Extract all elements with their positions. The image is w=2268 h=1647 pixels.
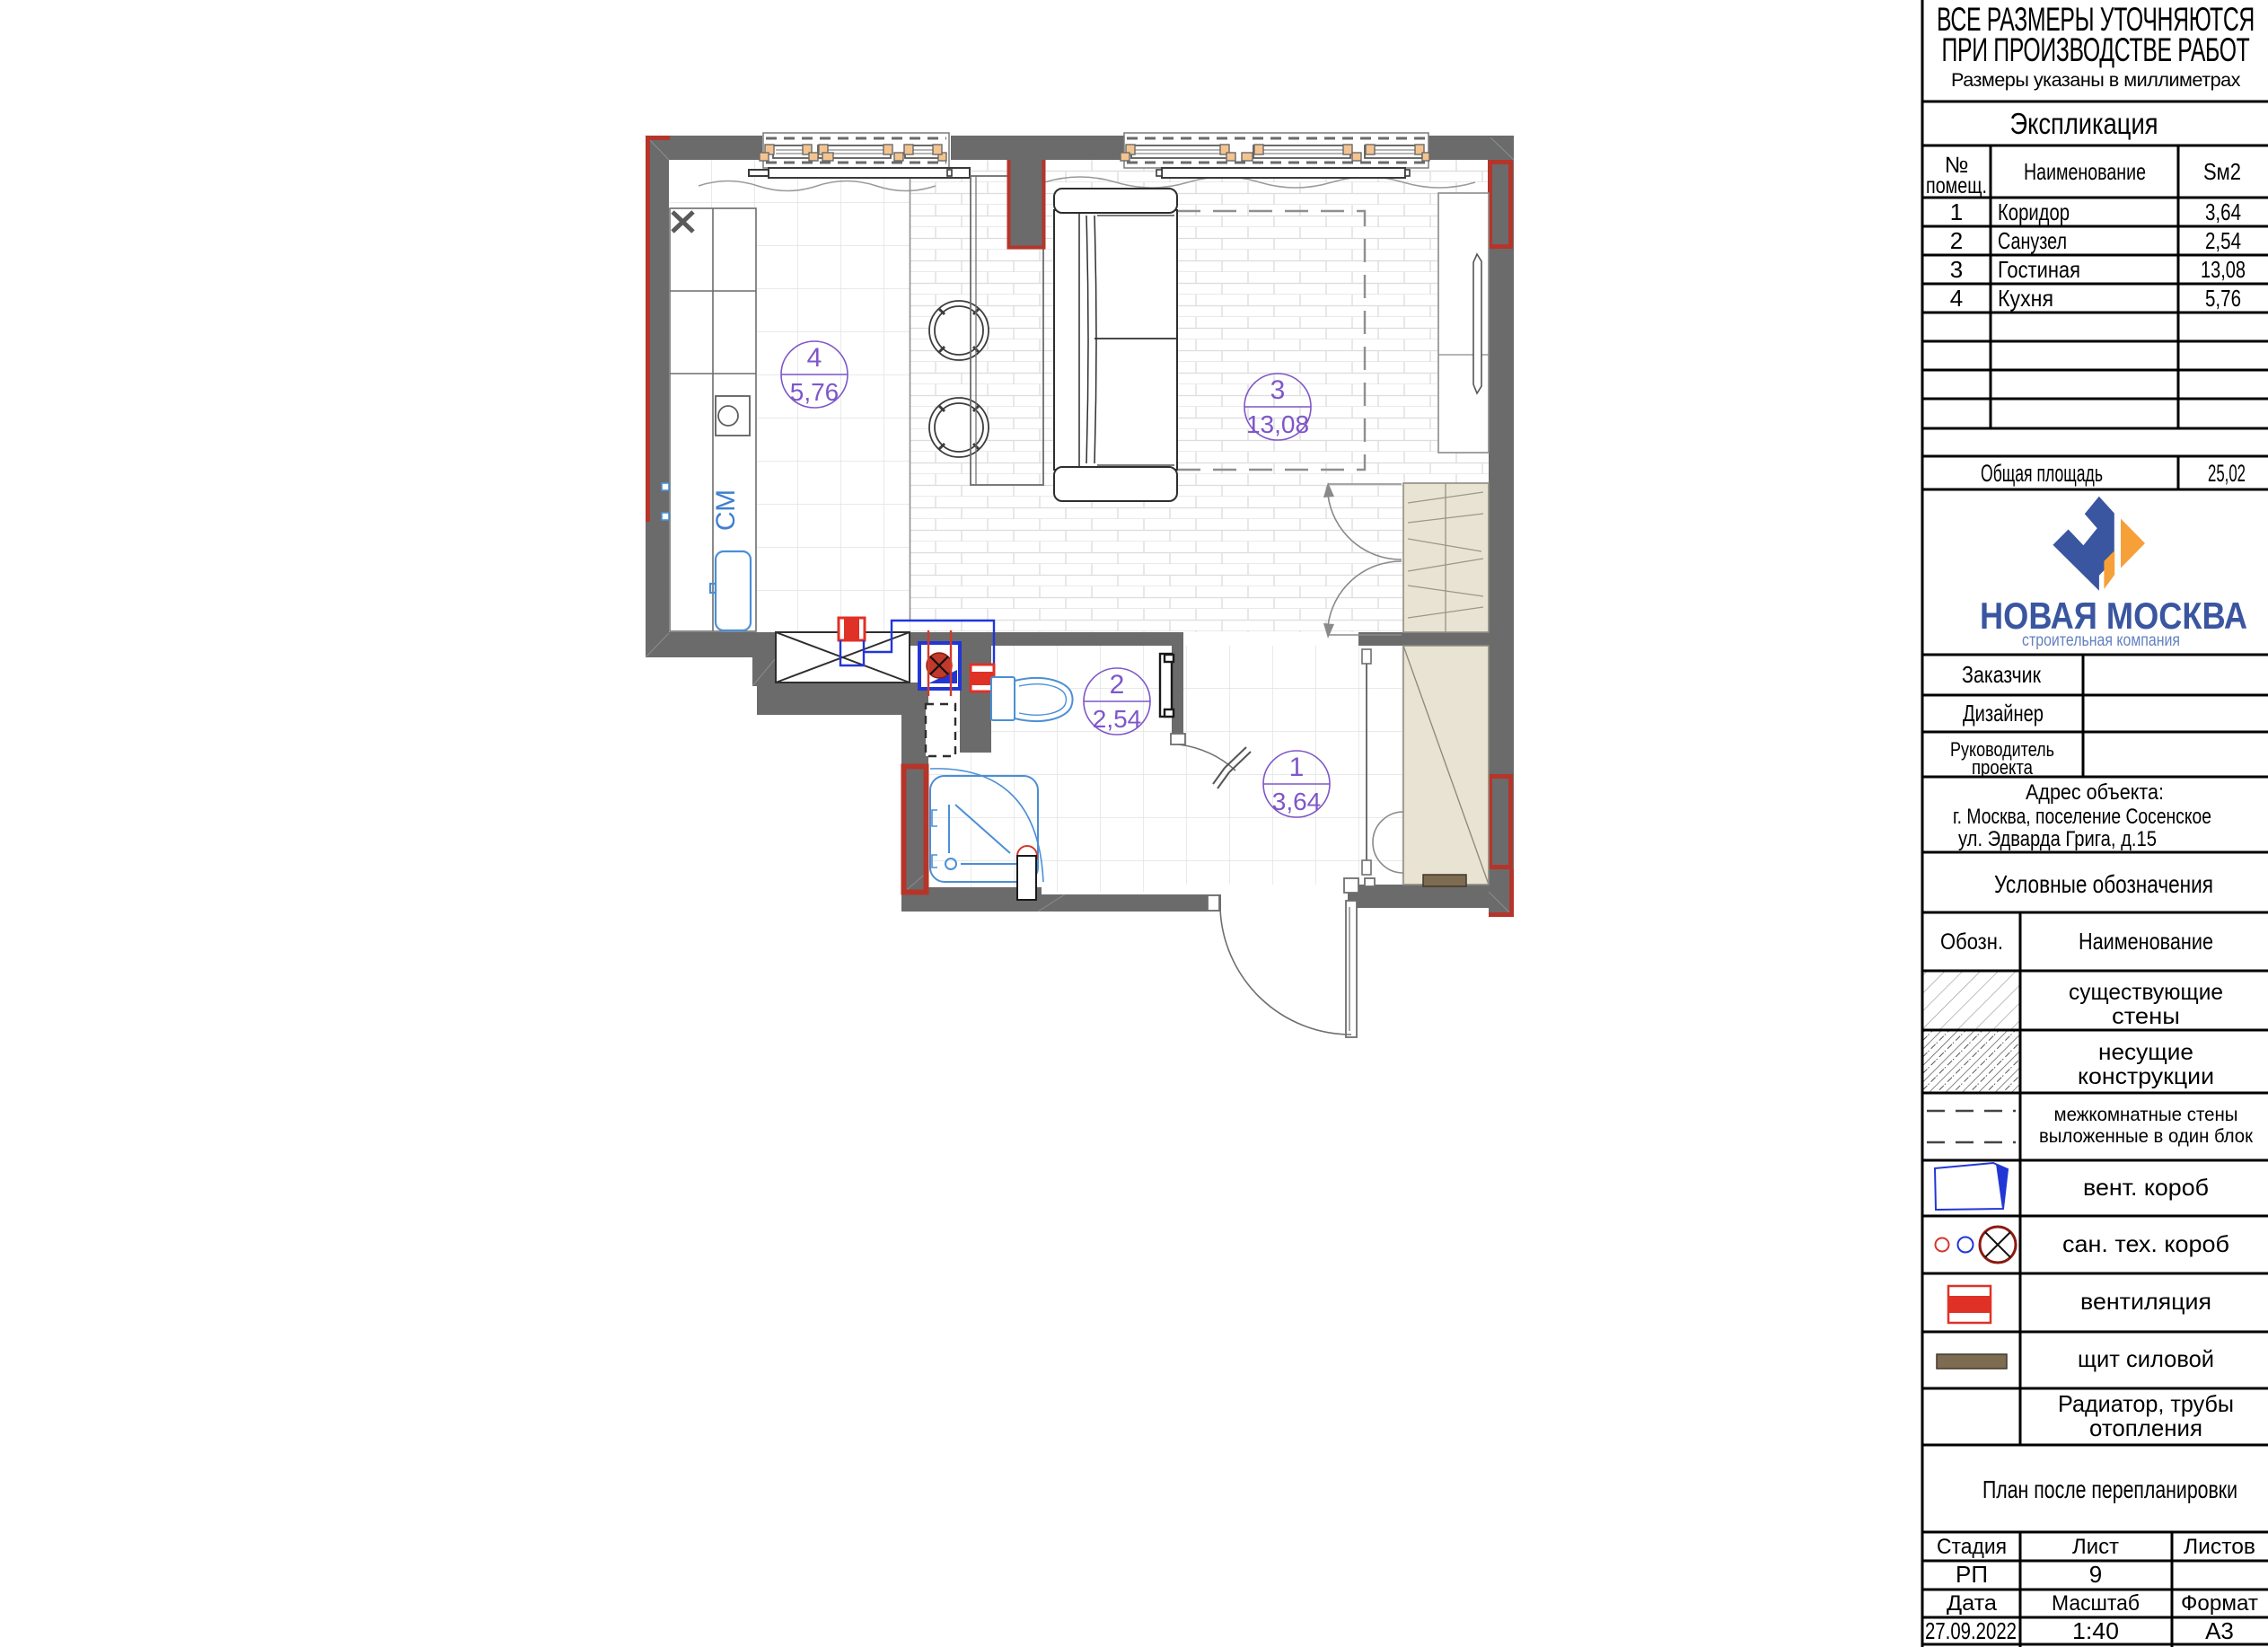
svg-text:межкомнатные стены: межкомнатные стены	[2054, 1105, 2238, 1125]
svg-text:проекта: проекта	[1972, 756, 2034, 779]
svg-text:ПРИ ПРОИЗВОДСТВЕ РАБОТ: ПРИ ПРОИЗВОДСТВЕ РАБОТ	[1942, 31, 2250, 68]
svg-text:4: 4	[1950, 285, 1963, 312]
svg-text:13,08: 13,08	[2201, 256, 2246, 283]
svg-text:План после перепланировки: План после перепланировки	[1982, 1475, 2237, 1503]
svg-text:выложенные в один блок: выложенные в один блок	[2039, 1126, 2254, 1147]
svg-text:Дизайнер: Дизайнер	[1963, 700, 2044, 727]
svg-text:строительная компания: строительная компания	[2022, 631, 2180, 650]
svg-text:Листов: Листов	[2184, 1535, 2255, 1559]
svg-text:Заказчик: Заказчик	[1962, 661, 2042, 688]
svg-text:Радиатор, трубы: Радиатор, трубы	[2058, 1390, 2234, 1417]
svg-text:А3: А3	[2205, 1617, 2234, 1644]
svg-text:РП: РП	[1956, 1561, 1988, 1588]
svg-text:ул. Эдварда Грига, д.15: ул. Эдварда Грига, д.15	[1958, 827, 2157, 851]
svg-text:существующие: существующие	[2069, 980, 2223, 1005]
svg-text:3,64: 3,64	[2205, 198, 2241, 225]
svg-text:Кухня: Кухня	[1998, 285, 2053, 312]
svg-text:Размеры указаны в миллиметрах: Размеры указаны в миллиметрах	[1951, 70, 2241, 91]
svg-text:Адрес объекта:: Адрес объекта:	[2026, 780, 2164, 805]
svg-text:2,54: 2,54	[2205, 227, 2241, 254]
svg-text:5,76: 5,76	[2205, 285, 2241, 312]
svg-text:Наименование: Наименование	[2024, 158, 2146, 185]
svg-text:сан. тех. короб: сан. тех. короб	[2062, 1230, 2229, 1257]
svg-text:Дата: Дата	[1947, 1591, 1998, 1616]
svg-text:щит силовой: щит силовой	[2078, 1345, 2214, 1372]
svg-text:НОВАЯ МОСКВА: НОВАЯ МОСКВА	[1980, 595, 2247, 637]
svg-text:2: 2	[1950, 227, 1963, 254]
svg-text:9: 9	[2089, 1561, 2102, 1588]
svg-text:1: 1	[1950, 198, 1963, 225]
svg-text:Условные обозначения: Условные обозначения	[1994, 870, 2213, 898]
svg-text:вентиляция: вентиляция	[2080, 1288, 2211, 1315]
svg-text:Стадия: Стадия	[1937, 1535, 2007, 1559]
svg-text:отопления: отопления	[2089, 1414, 2202, 1441]
svg-text:стены: стены	[2112, 1004, 2180, 1029]
svg-text:Гостиная: Гостиная	[1998, 256, 2080, 283]
svg-text:Санузел: Санузел	[1998, 227, 2067, 254]
svg-text:Масштаб: Масштаб	[2052, 1591, 2140, 1616]
svg-text:помещ.: помещ.	[1926, 173, 1987, 198]
svg-text:Коридор: Коридор	[1998, 198, 2070, 225]
svg-text:Формат: Формат	[2181, 1591, 2258, 1616]
svg-text:несущие: несущие	[2098, 1040, 2193, 1065]
svg-text:3: 3	[1950, 256, 1963, 283]
svg-text:27.09.2022: 27.09.2022	[1925, 1617, 2017, 1644]
svg-text:Обозн.: Обозн.	[1940, 929, 2003, 955]
svg-text:Лист: Лист	[2072, 1535, 2119, 1559]
svg-text:г. Москва, поселение Сосенское: г. Москва, поселение Сосенское	[1953, 805, 2211, 829]
svg-text:1:40: 1:40	[2072, 1617, 2119, 1644]
svg-text:Sм2: Sм2	[2203, 158, 2241, 185]
svg-text:25,02: 25,02	[2208, 460, 2246, 487]
svg-text:Экспликация: Экспликация	[2010, 107, 2158, 140]
svg-text:конструкции: конструкции	[2078, 1064, 2214, 1089]
svg-text:Общая площадь: Общая площадь	[1981, 460, 2103, 487]
svg-text:вент. короб: вент. короб	[2083, 1174, 2209, 1201]
svg-text:Наименование: Наименование	[2079, 928, 2213, 955]
